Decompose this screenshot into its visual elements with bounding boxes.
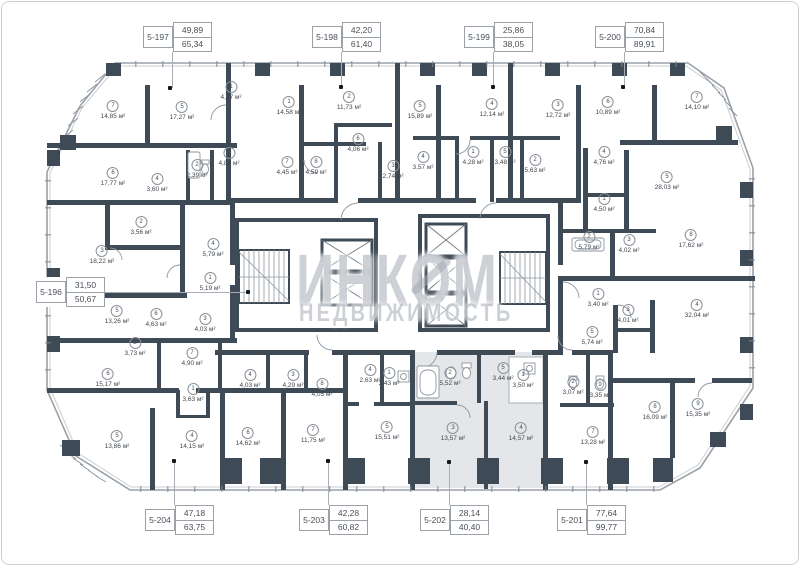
room-area: 4,28 м² xyxy=(462,159,483,166)
room-number: 6 xyxy=(242,427,254,439)
unit-living-area: 25,86 xyxy=(495,23,532,38)
room-number: 4 xyxy=(598,146,610,158)
unit-id: 5-200 xyxy=(595,26,625,48)
unit-id: 5-203 xyxy=(299,509,329,531)
callout-leader-line xyxy=(172,52,173,88)
room-area: 32,04 м² xyxy=(685,312,710,319)
room-area: 4,01 м² xyxy=(617,317,638,324)
room-label: 515,89 м² xyxy=(408,100,433,120)
callout-anchor-dot xyxy=(168,86,172,90)
room-area: 4,02 м² xyxy=(618,247,639,254)
room-area: 5,52 м² xyxy=(439,380,460,387)
room-area: 4,63 м² xyxy=(145,321,166,328)
room-area: 11,73 м² xyxy=(337,104,361,111)
room-number: 1 xyxy=(517,369,529,381)
room-number: 8 xyxy=(316,378,328,390)
room-number: 1 xyxy=(204,272,216,284)
room-label: 93,35 м² xyxy=(589,379,610,399)
room-number: 4 xyxy=(186,430,198,442)
room-number: 6 xyxy=(107,167,119,179)
room-area: 4,03 м² xyxy=(239,382,260,389)
room-area: 3,44 м² xyxy=(492,375,513,382)
room-area: 15,51 м² xyxy=(375,434,400,441)
room-number: 3 xyxy=(287,369,299,381)
unit-total-area: 60,82 xyxy=(330,521,367,535)
room-number: 4 xyxy=(691,299,703,311)
room-area: 3,48 м² xyxy=(494,159,515,166)
room-number: 7 xyxy=(281,156,293,168)
room-label: 32,74 м² xyxy=(382,160,403,180)
room-number: 5 xyxy=(111,430,123,442)
room-area: 3,35 м² xyxy=(589,392,610,399)
room-area: 16,09 м² xyxy=(643,414,668,421)
room-number: 1 xyxy=(467,146,479,158)
room-number: 4 xyxy=(486,98,498,110)
callout-leader-line xyxy=(328,461,329,505)
room-number: 3 xyxy=(552,99,564,111)
room-label: 45,79 м² xyxy=(202,238,223,258)
unit-total-area: 40,40 xyxy=(451,521,488,535)
room-area: 17,27 м² xyxy=(170,114,195,121)
room-label: 13,40 м² xyxy=(587,288,608,308)
room-area: 13,28 м² xyxy=(581,439,606,446)
room-number: 2 xyxy=(444,367,456,379)
room-number: 3 xyxy=(96,245,108,257)
room-label: 23,73 м² xyxy=(124,337,145,357)
room-area: 4,03 м² xyxy=(194,326,215,333)
room-label: 513,86 м² xyxy=(105,430,130,450)
room-number: 5 xyxy=(111,305,123,317)
room-number: 7 xyxy=(691,91,703,103)
room-number: 3 xyxy=(199,313,211,325)
room-label: 53,48 м² xyxy=(494,146,515,166)
callout-leader-line xyxy=(624,52,625,87)
room-number: 5 xyxy=(499,146,511,158)
unit-living-area: 70,84 xyxy=(626,23,663,38)
unit-living-area: 31,50 xyxy=(67,278,104,293)
unit-living-area: 49,89 xyxy=(174,23,211,38)
callout-leader-line xyxy=(102,292,248,293)
room-label: 84,59 м² xyxy=(305,156,326,176)
unit-total-area: 65,34 xyxy=(174,38,211,52)
room-label: 55,74 м² xyxy=(581,326,602,346)
room-label: 318,22 м² xyxy=(90,245,115,265)
room-label: 528,03 м² xyxy=(655,171,680,191)
room-label: 42,63 м² xyxy=(359,364,380,384)
room-number: 4 xyxy=(151,173,163,185)
room-number: 5 xyxy=(414,100,426,112)
room-label: 23,07 м² xyxy=(562,376,583,396)
room-area: 3,40 м² xyxy=(587,301,608,308)
room-area: 3,63 м² xyxy=(182,396,203,403)
callout-leader-line xyxy=(449,462,450,505)
room-label: 312,72 м² xyxy=(546,99,571,119)
room-area: 4,29 м² xyxy=(282,382,303,389)
room-label: 34,02 м² xyxy=(618,234,639,254)
room-label: 44,03 м² xyxy=(239,369,260,389)
unit-id: 5-198 xyxy=(312,26,342,48)
room-label: 614,62 м² xyxy=(236,427,261,447)
room-area: 14,57 м² xyxy=(509,435,534,442)
room-area: 4,59 м² xyxy=(305,169,326,176)
room-number: 7 xyxy=(107,100,119,112)
room-number: 2 xyxy=(583,231,595,243)
room-number: 3 xyxy=(447,422,459,434)
room-label: 414,57 м² xyxy=(509,422,534,442)
unit-callout-5-196[interactable]: 5-19631,5050,67 xyxy=(36,277,105,307)
callout-anchor-dot xyxy=(491,85,495,89)
callout-leader-line xyxy=(174,461,175,505)
callout-anchor-dot xyxy=(621,85,625,89)
unit-total-area: 50,67 xyxy=(67,293,104,307)
room-number: 3 xyxy=(622,304,634,316)
room-label: 617,77 м² xyxy=(101,167,126,187)
room-number: 8 xyxy=(685,229,697,241)
room-label: 34,03 м² xyxy=(194,313,215,333)
room-number: 5 xyxy=(176,101,188,113)
unit-living-area: 42,20 xyxy=(343,23,380,38)
room-number: 2 xyxy=(529,154,541,166)
room-number: 2 xyxy=(191,159,203,171)
room-area: 13,57 м² xyxy=(441,435,466,442)
room-area: 4,57 м² xyxy=(220,94,241,101)
room-area: 12,72 м² xyxy=(546,112,571,119)
room-label: 610,89 м² xyxy=(596,96,621,116)
unit-callout-5-201[interactable]: 5-20177,6499,77 xyxy=(557,505,626,535)
unit-total-area: 99,77 xyxy=(588,521,625,535)
room-area: 3,56 м² xyxy=(130,229,151,236)
room-area: 10,89 м² xyxy=(596,109,621,116)
room-number: 9 xyxy=(692,398,704,410)
unit-total-area: 38,05 xyxy=(495,38,532,52)
room-label: 34,29 м² xyxy=(282,369,303,389)
room-number: 3 xyxy=(223,147,235,159)
room-number: 5 xyxy=(661,171,673,183)
room-number: 2 xyxy=(135,216,147,228)
room-area: 3,43 м² xyxy=(378,380,399,387)
room-label: 915,35 м² xyxy=(686,398,711,418)
room-number: 4 xyxy=(364,364,376,376)
room-number: 8 xyxy=(649,401,661,413)
room-area: 13,86 м² xyxy=(105,443,130,450)
room-area: 11,75 м² xyxy=(301,437,325,444)
unit-id: 5-197 xyxy=(143,26,173,48)
room-label: 817,62 м² xyxy=(679,229,704,249)
room-number: 7 xyxy=(307,424,319,436)
room-number: 5 xyxy=(586,326,598,338)
room-area: 3,73 м² xyxy=(124,350,145,357)
room-label: 64,06 м² xyxy=(347,133,368,153)
plan-labels-layer: 714,85 м²517,27 м²14,57 м²617,77 м²22,39… xyxy=(0,0,800,566)
room-label: 13,63 м² xyxy=(182,383,203,403)
room-label: 34,01 м² xyxy=(617,304,638,324)
room-number: 1 xyxy=(283,96,295,108)
room-area: 17,62 м² xyxy=(679,242,704,249)
unit-total-area: 63,75 xyxy=(176,521,213,535)
room-area: 5,79 м² xyxy=(202,251,223,258)
callout-anchor-dot xyxy=(246,290,250,294)
room-area: 12,14 м² xyxy=(480,111,505,118)
room-area: 14,10 м² xyxy=(685,104,710,111)
room-number: 4 xyxy=(244,369,256,381)
room-area: 4,05 м² xyxy=(311,391,332,398)
room-label: 513,26 м² xyxy=(105,305,130,325)
room-label: 64,63 м² xyxy=(145,308,166,328)
unit-id: 5-202 xyxy=(420,509,450,531)
room-label: 313,57 м² xyxy=(441,422,466,442)
room-area: 3,60 м² xyxy=(146,186,167,193)
room-number: 1 xyxy=(598,193,610,205)
callout-leader-line xyxy=(493,52,494,87)
room-label: 14,50 м² xyxy=(593,193,614,213)
room-number: 9 xyxy=(594,379,606,391)
room-area: 3,07 м² xyxy=(562,389,583,396)
room-label: 25,63 м² xyxy=(524,154,545,174)
room-area: 2,74 м² xyxy=(382,173,403,180)
room-area: 2,63 м² xyxy=(359,377,380,384)
room-area: 4,06 м² xyxy=(347,146,368,153)
room-number: 3 xyxy=(387,160,399,172)
room-label: 43,57 м² xyxy=(412,151,433,171)
room-label: 34,84 м² xyxy=(218,147,239,167)
room-area: 5,63 м² xyxy=(524,167,545,174)
room-label: 22,39 м² xyxy=(186,159,207,179)
room-area: 15,35 м² xyxy=(686,411,711,418)
unit-callout-5-204[interactable]: 5-20447,1863,75 xyxy=(145,505,214,535)
room-label: 25,52 м² xyxy=(439,367,460,387)
callout-anchor-dot xyxy=(584,460,588,464)
room-number: 7 xyxy=(587,426,599,438)
room-label: 114,58 м² xyxy=(277,96,302,116)
room-label: 25,79 м² xyxy=(578,231,599,251)
room-number: 7 xyxy=(186,347,198,359)
room-area: 14,15 м² xyxy=(180,443,205,450)
room-number: 8 xyxy=(310,156,322,168)
unit-id: 5-199 xyxy=(464,26,494,48)
room-label: 23,56 м² xyxy=(130,216,151,236)
floor-plan: ИНКОМ НЕДВИЖИМОСТЬ 714,85 м²517,27 м²14,… xyxy=(0,0,800,566)
room-area: 3,57 м² xyxy=(412,164,433,171)
room-number: 4 xyxy=(417,151,429,163)
unit-callout-5-198[interactable]: 5-19842,2061,40 xyxy=(312,22,381,52)
room-area: 15,17 м² xyxy=(96,381,121,388)
room-number: 6 xyxy=(602,96,614,108)
room-label: 714,10 м² xyxy=(685,91,710,111)
room-number: 6 xyxy=(102,368,114,380)
room-area: 2,39 м² xyxy=(186,172,207,179)
room-number: 2 xyxy=(343,91,355,103)
unit-total-area: 61,40 xyxy=(343,38,380,52)
room-label: 74,45 м² xyxy=(276,156,297,176)
room-area: 14,58 м² xyxy=(277,109,302,116)
room-number: 5 xyxy=(497,362,509,374)
room-label: 414,15 м² xyxy=(180,430,205,450)
room-number: 4 xyxy=(207,238,219,250)
room-number: 2 xyxy=(567,376,579,388)
room-area: 15,89 м² xyxy=(408,113,433,120)
unit-callout-5-199[interactable]: 5-19925,8638,05 xyxy=(464,22,533,52)
unit-callout-5-203[interactable]: 5-20342,2860,82 xyxy=(299,505,368,535)
room-label: 44,76 м² xyxy=(593,146,614,166)
room-area: 14,62 м² xyxy=(236,440,261,447)
unit-living-area: 77,64 xyxy=(588,506,625,521)
callout-leader-line xyxy=(586,462,587,505)
room-area: 14,85 м² xyxy=(101,113,126,120)
room-label: 517,27 м² xyxy=(170,101,195,121)
room-number: 1 xyxy=(225,81,237,93)
unit-callout-5-197[interactable]: 5-19749,8965,34 xyxy=(143,22,212,52)
room-number: 6 xyxy=(352,133,364,145)
room-area: 5,74 м² xyxy=(581,339,602,346)
room-area: 4,76 м² xyxy=(593,159,614,166)
room-label: 615,17 м² xyxy=(96,368,121,388)
room-label: 13,43 м² xyxy=(378,367,399,387)
room-number: 3 xyxy=(623,234,635,246)
room-label: 714,85 м² xyxy=(101,100,126,120)
room-area: 4,50 м² xyxy=(593,206,614,213)
callout-anchor-dot xyxy=(447,460,451,464)
room-area: 17,77 м² xyxy=(101,180,126,187)
room-label: 43,60 м² xyxy=(146,173,167,193)
unit-total-area: 89,91 xyxy=(626,38,663,52)
room-label: 515,51 м² xyxy=(375,421,400,441)
unit-callout-5-202[interactable]: 5-20228,1440,40 xyxy=(420,505,489,535)
room-label: 711,75 м² xyxy=(301,424,325,444)
room-number: 2 xyxy=(129,337,141,349)
room-area: 5,79 м² xyxy=(578,244,599,251)
room-label: 84,05 м² xyxy=(311,378,332,398)
room-number: 1 xyxy=(187,383,199,395)
room-label: 53,44 м² xyxy=(492,362,513,382)
room-area: 13,26 м² xyxy=(105,318,130,325)
room-area: 28,03 м² xyxy=(655,184,680,191)
room-area: 4,90 м² xyxy=(181,360,202,367)
unit-callout-5-200[interactable]: 5-20070,8489,91 xyxy=(595,22,664,52)
room-number: 1 xyxy=(383,367,395,379)
callout-leader-line xyxy=(341,52,342,87)
unit-id: 5-196 xyxy=(36,281,66,303)
room-number: 4 xyxy=(515,422,527,434)
callout-anchor-dot xyxy=(339,85,343,89)
unit-living-area: 47,18 xyxy=(176,506,213,521)
room-label: 432,04 м² xyxy=(685,299,710,319)
room-number: 6 xyxy=(150,308,162,320)
room-label: 713,28 м² xyxy=(581,426,606,446)
room-number: 5 xyxy=(381,421,393,433)
room-label: 14,28 м² xyxy=(462,146,483,166)
callout-anchor-dot xyxy=(172,459,176,463)
room-label: 816,09 м² xyxy=(643,401,668,421)
unit-id: 5-204 xyxy=(145,509,175,531)
room-area: 18,22 м² xyxy=(90,258,115,265)
room-area: 4,84 м² xyxy=(218,160,239,167)
unit-id: 5-201 xyxy=(557,509,587,531)
unit-living-area: 42,28 xyxy=(330,506,367,521)
room-area: 3,50 м² xyxy=(512,382,533,389)
room-area: 4,45 м² xyxy=(276,169,297,176)
room-label: 15,19 м² xyxy=(199,272,220,292)
room-number: 1 xyxy=(592,288,604,300)
room-label: 14,57 м² xyxy=(220,81,241,101)
room-label: 74,90 м² xyxy=(181,347,202,367)
room-label: 211,73 м² xyxy=(337,91,361,111)
room-label: 13,50 м² xyxy=(512,369,533,389)
callout-anchor-dot xyxy=(326,459,330,463)
room-area: 5,19 м² xyxy=(199,285,220,292)
unit-living-area: 28,14 xyxy=(451,506,488,521)
room-label: 412,14 м² xyxy=(480,98,505,118)
